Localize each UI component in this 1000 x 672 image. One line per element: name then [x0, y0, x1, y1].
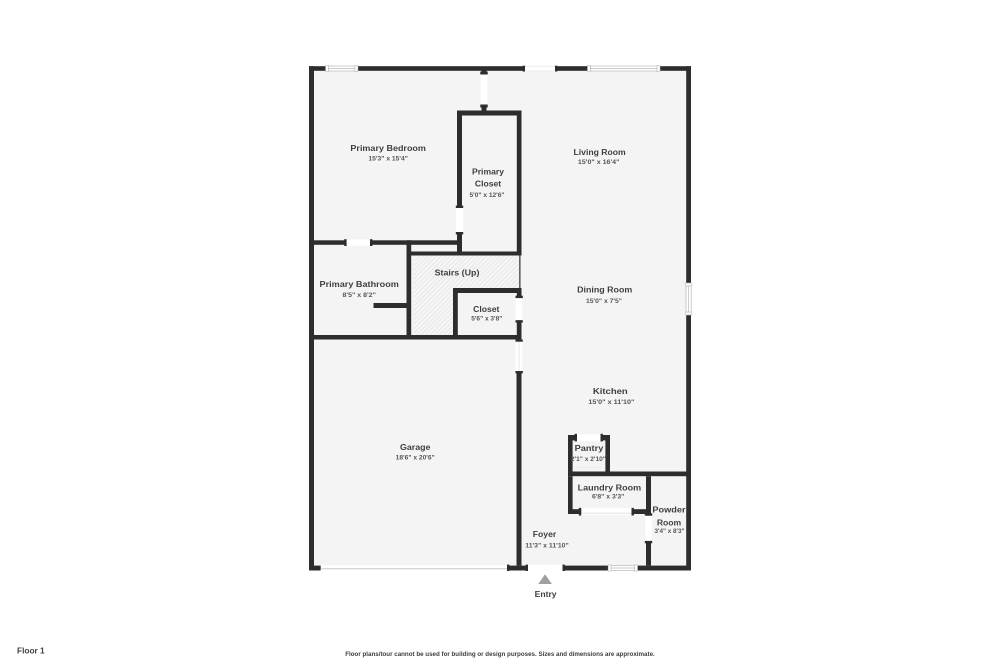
svg-text:Primary Bathroom: Primary Bathroom: [320, 279, 400, 289]
svg-text:Entry: Entry: [535, 589, 557, 599]
svg-text:5'6" x 3'8": 5'6" x 3'8": [471, 316, 502, 323]
svg-text:Floor 1: Floor 1: [17, 646, 45, 656]
svg-text:3'4" x 8'3": 3'4" x 8'3": [655, 528, 685, 535]
svg-text:Kitchen: Kitchen: [593, 386, 628, 396]
svg-text:Primary Bedroom: Primary Bedroom: [350, 143, 426, 153]
svg-text:Stairs (Up): Stairs (Up): [435, 267, 480, 277]
svg-text:Closet: Closet: [473, 304, 499, 314]
svg-text:Dining Room: Dining Room: [577, 285, 632, 295]
svg-text:2'1" x 2'10": 2'1" x 2'10": [571, 456, 606, 463]
svg-text:Foyer: Foyer: [533, 529, 557, 539]
svg-text:Floor plans/tour cannot be use: Floor plans/tour cannot be used for buil…: [345, 651, 655, 658]
svg-text:11'3" x 11'10": 11'3" x 11'10": [525, 543, 569, 550]
svg-text:Pantry: Pantry: [575, 443, 604, 453]
svg-text:Laundry Room: Laundry Room: [578, 482, 642, 492]
svg-text:15'0" x 16'4": 15'0" x 16'4": [578, 159, 620, 166]
svg-text:8'5" x 8'2": 8'5" x 8'2": [343, 292, 376, 299]
svg-text:Powder: Powder: [652, 505, 686, 515]
svg-text:15'0" x 11'10": 15'0" x 11'10": [588, 399, 634, 406]
svg-text:15'3" x 15'4": 15'3" x 15'4": [368, 155, 408, 162]
svg-text:Room: Room: [657, 518, 682, 528]
svg-text:15'0" x 7'5": 15'0" x 7'5": [586, 298, 622, 305]
svg-text:Closet: Closet: [475, 179, 501, 189]
svg-text:18'6" x 20'6": 18'6" x 20'6": [396, 455, 435, 462]
svg-text:Garage: Garage: [400, 442, 431, 452]
svg-text:6'8" x 3'3": 6'8" x 3'3": [592, 494, 624, 501]
svg-text:Primary: Primary: [472, 167, 504, 177]
svg-text:Living Room: Living Room: [574, 147, 627, 157]
svg-text:5'0" x 12'6": 5'0" x 12'6": [470, 192, 505, 199]
